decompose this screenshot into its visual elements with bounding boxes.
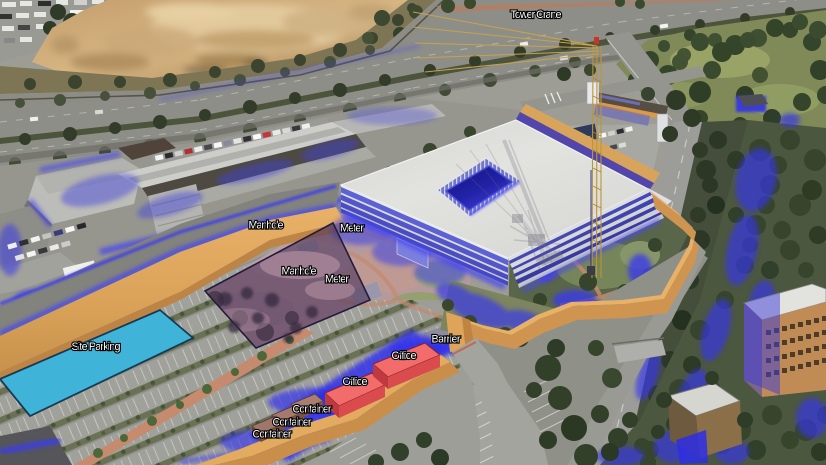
svg-text:Manhole: Manhole <box>249 220 284 232</box>
svg-text:Barrier: Barrier <box>432 334 461 346</box>
svg-text:Container: Container <box>273 417 312 429</box>
svg-text:Manhole: Manhole <box>282 266 317 278</box>
svg-text:Container: Container <box>293 404 332 416</box>
svg-text:Meter: Meter <box>340 223 364 235</box>
svg-text:Office: Office <box>343 376 368 388</box>
svg-text:Meter: Meter <box>325 274 349 286</box>
svg-text:Tower Crane: Tower Crane <box>511 9 562 21</box>
svg-text:Container: Container <box>253 429 292 441</box>
svg-text:Office: Office <box>392 350 417 362</box>
svg-text:Site Parking: Site Parking <box>72 341 121 353</box>
